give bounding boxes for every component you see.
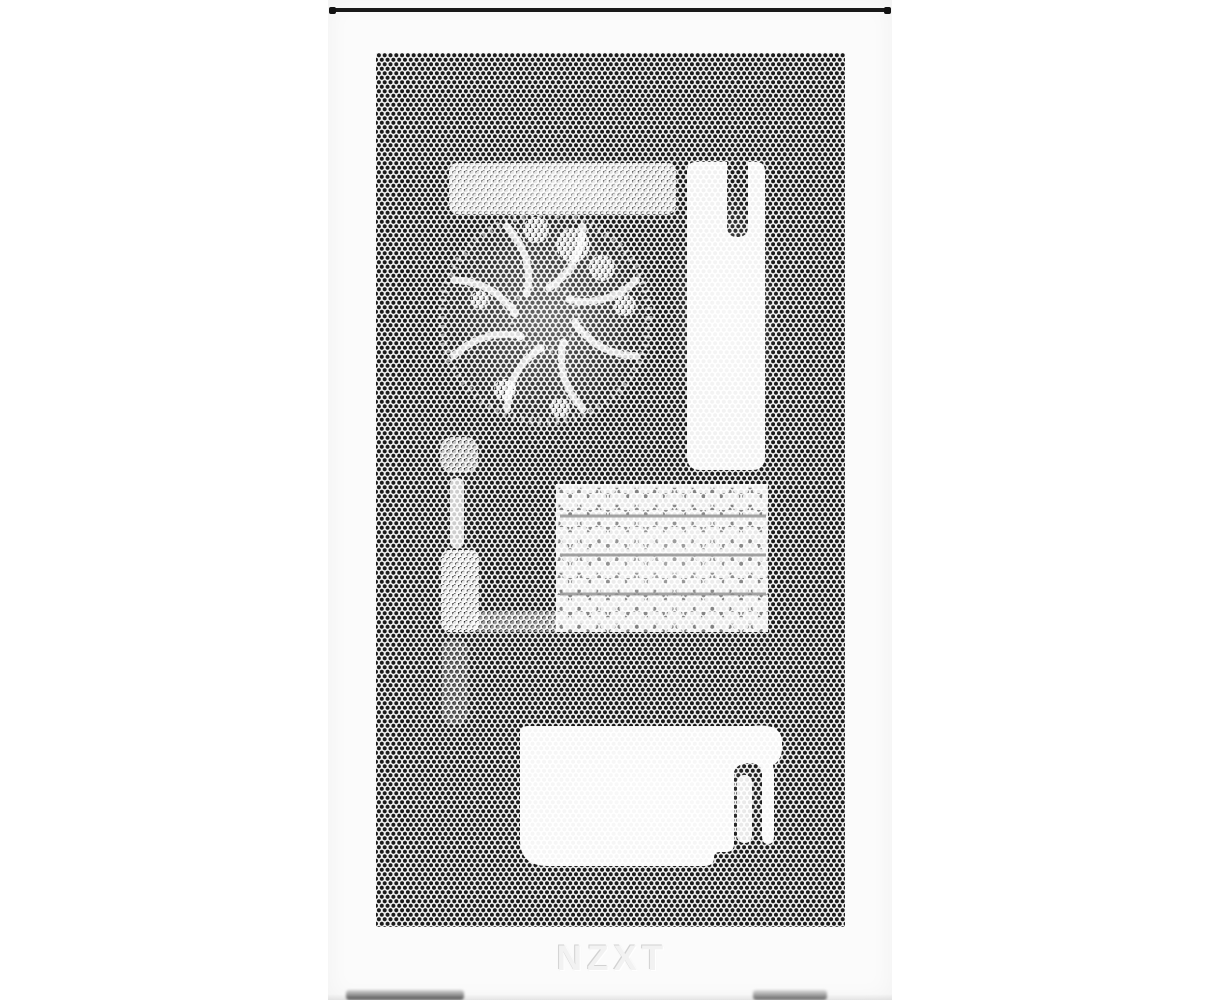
case-side-panel: NZXT xyxy=(328,0,892,1000)
rear-bracket xyxy=(687,162,765,470)
internal-silhouettes xyxy=(376,53,845,927)
side-reflection-strips xyxy=(440,437,558,725)
left-foot-shadow xyxy=(346,990,464,1000)
nzxt-logo: NZXT xyxy=(328,941,892,976)
perforated-mesh xyxy=(376,53,845,927)
cooling-fan xyxy=(441,214,649,422)
psu-shroud xyxy=(520,726,782,867)
radiator-top-band xyxy=(449,163,676,214)
gpu-heatsink-fins xyxy=(556,484,768,632)
product-photo: NZXT xyxy=(0,0,1223,1000)
panel-top-edge xyxy=(331,8,889,12)
right-foot-shadow xyxy=(753,990,827,1000)
cable-slots xyxy=(737,775,752,843)
